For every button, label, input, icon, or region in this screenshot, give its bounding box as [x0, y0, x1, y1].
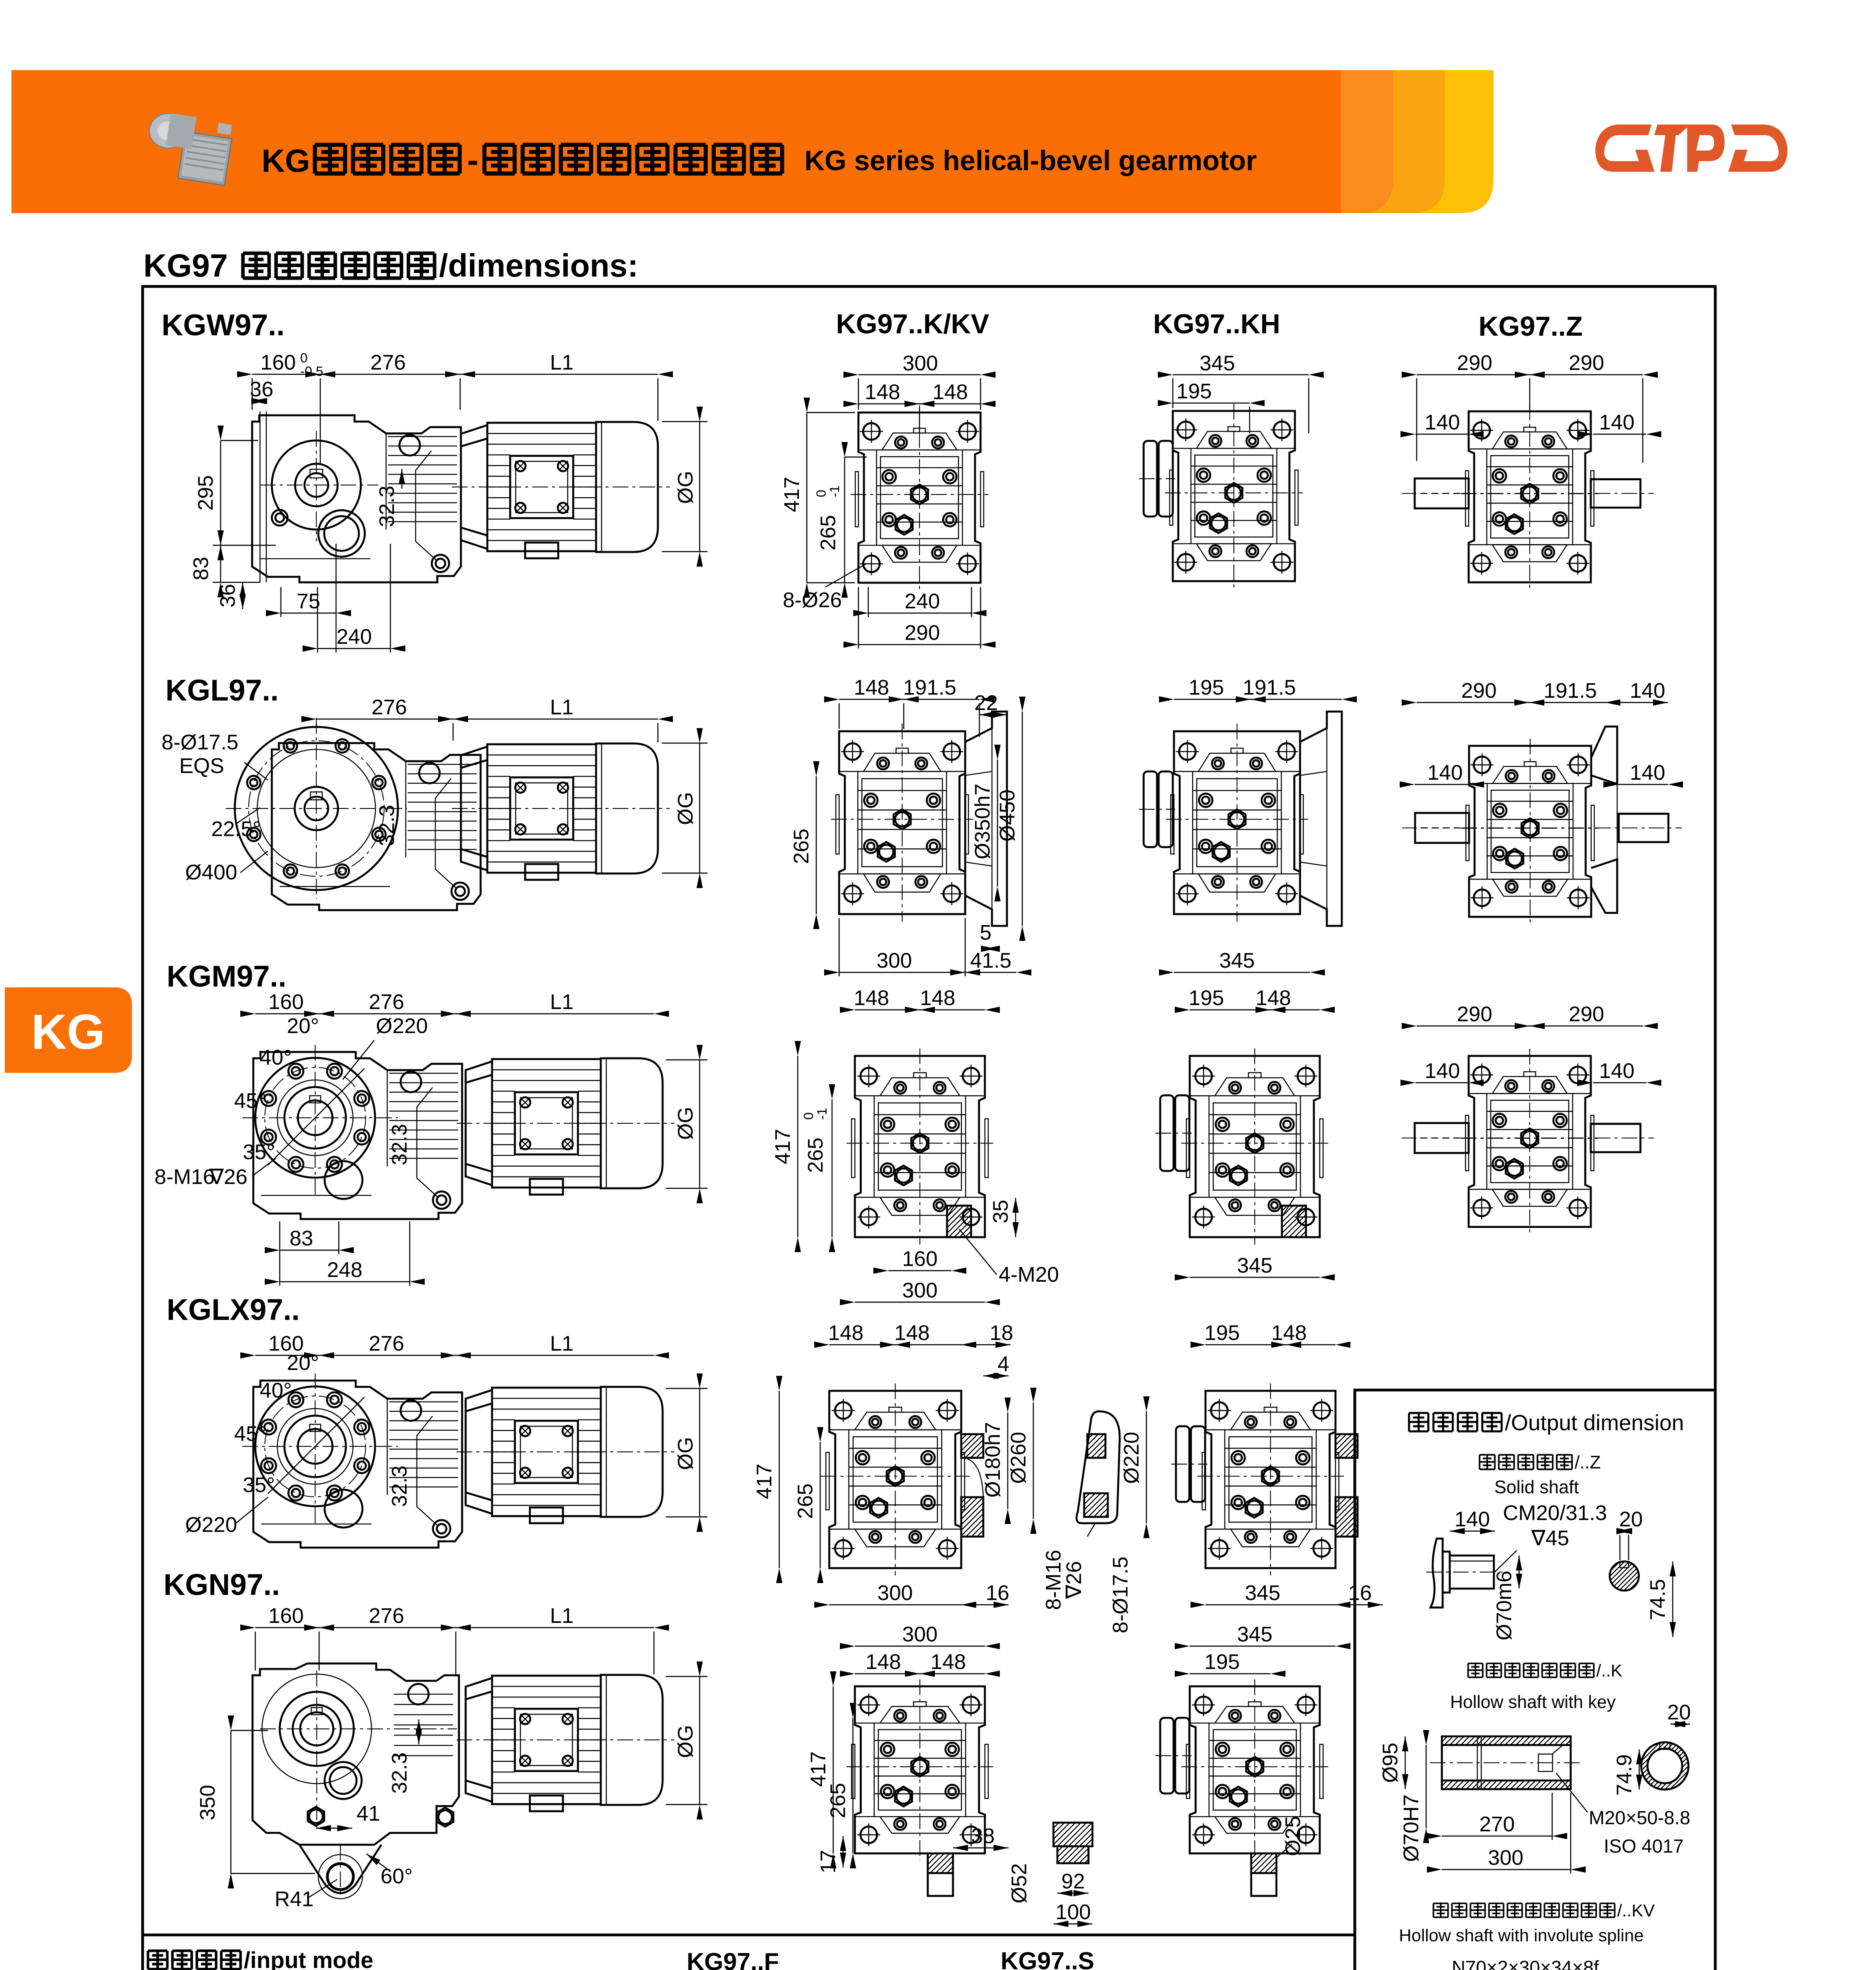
svg-text:148: 148: [866, 1650, 901, 1674]
svg-text:Ø70H7: Ø70H7: [1399, 1794, 1423, 1862]
svg-text:5: 5: [980, 921, 992, 944]
svg-text:-1: -1: [815, 1108, 830, 1120]
svg-text:160: 160: [902, 1247, 938, 1271]
svg-text:160: 160: [260, 351, 296, 374]
svg-text:22: 22: [974, 691, 998, 715]
svg-text:195: 195: [1189, 676, 1224, 699]
svg-text:Ø260: Ø260: [1007, 1432, 1030, 1484]
svg-text:0: 0: [300, 351, 308, 366]
svg-text:345: 345: [1219, 949, 1255, 972]
svg-text:140: 140: [1630, 761, 1665, 784]
svg-text:/input mode: /input mode: [244, 1948, 373, 1970]
svg-text:148: 148: [854, 986, 889, 1010]
svg-text:140: 140: [1599, 1059, 1635, 1083]
svg-text:KGLX97..: KGLX97..: [167, 1293, 300, 1327]
svg-text:22.5°: 22.5°: [211, 817, 261, 841]
svg-text:EQS: EQS: [179, 754, 224, 778]
svg-text:140: 140: [1630, 679, 1665, 703]
svg-text:300: 300: [877, 1581, 913, 1605]
svg-text:KG97..K/KV: KG97..K/KV: [836, 309, 989, 339]
svg-text:40°: 40°: [260, 1046, 292, 1069]
svg-text:/..Z: /..Z: [1575, 1452, 1601, 1472]
svg-text:Ø400: Ø400: [185, 860, 237, 884]
svg-text:148: 148: [828, 1321, 864, 1345]
svg-text:-: -: [467, 141, 479, 179]
svg-text:16: 16: [986, 1581, 1009, 1605]
svg-text:8-Ø17.5: 8-Ø17.5: [1109, 1556, 1132, 1633]
svg-text:140: 140: [1454, 1507, 1490, 1531]
svg-text:8-M16: 8-M16: [1042, 1550, 1065, 1610]
svg-text:92: 92: [1061, 1870, 1085, 1893]
svg-text:248: 248: [327, 1258, 362, 1282]
svg-text:148: 148: [854, 676, 889, 699]
svg-text:∇45: ∇45: [1531, 1526, 1569, 1550]
svg-text:140: 140: [1425, 1059, 1460, 1083]
svg-text:345: 345: [1245, 1581, 1280, 1605]
svg-text:345: 345: [1237, 1254, 1272, 1277]
svg-text:276: 276: [371, 695, 407, 719]
svg-text:Ø180h7: Ø180h7: [981, 1422, 1005, 1498]
svg-text:20°: 20°: [287, 1014, 319, 1038]
svg-text:20°: 20°: [287, 1351, 319, 1375]
svg-text:140: 140: [1425, 411, 1460, 434]
svg-text:35°: 35°: [243, 1140, 275, 1164]
svg-text:ØG: ØG: [674, 1437, 697, 1470]
svg-text:195: 195: [1204, 1650, 1240, 1674]
svg-text:265: 265: [804, 1137, 827, 1173]
svg-text:195: 195: [1204, 1321, 1240, 1345]
svg-text:L1: L1: [550, 695, 574, 719]
svg-text:300: 300: [1488, 1846, 1523, 1870]
svg-text:8-M16: 8-M16: [154, 1165, 215, 1189]
svg-text:KG97..Z: KG97..Z: [1479, 311, 1583, 342]
svg-text:265: 265: [789, 829, 813, 864]
svg-text:32.3: 32.3: [388, 1465, 411, 1507]
svg-text:KG97..KH: KG97..KH: [1153, 309, 1280, 339]
svg-text:0: 0: [814, 490, 829, 497]
svg-text:45°: 45°: [234, 1089, 266, 1113]
svg-text:Ø70m6: Ø70m6: [1492, 1570, 1516, 1640]
svg-text:Ø95: Ø95: [1378, 1743, 1402, 1783]
svg-text:L1: L1: [550, 990, 574, 1014]
svg-text:∇26: ∇26: [209, 1165, 247, 1189]
svg-text:191.5: 191.5: [903, 676, 956, 699]
svg-text:290: 290: [1457, 1002, 1492, 1026]
svg-text:KG series helical-bevel gearmo: KG series helical-bevel gearmotor: [804, 145, 1257, 177]
svg-text:265: 265: [793, 1483, 817, 1519]
svg-text:32.3: 32.3: [388, 1124, 411, 1165]
svg-text:20: 20: [1667, 1701, 1691, 1724]
svg-text:74.5: 74.5: [1646, 1579, 1670, 1620]
svg-text:Ø220: Ø220: [1120, 1432, 1143, 1484]
svg-text:∇26: ∇26: [1062, 1561, 1086, 1599]
svg-text:290: 290: [1457, 351, 1492, 375]
svg-text:ØG: ØG: [674, 471, 697, 504]
svg-text:300: 300: [903, 351, 938, 375]
svg-text:270: 270: [1479, 1812, 1515, 1836]
svg-text:CM20/31.3: CM20/31.3: [1503, 1501, 1607, 1525]
svg-text:KGN97..: KGN97..: [163, 1568, 280, 1602]
svg-text:8-Ø17.5: 8-Ø17.5: [162, 730, 238, 754]
svg-text:290: 290: [1461, 679, 1497, 703]
svg-text:265: 265: [816, 515, 840, 550]
svg-text:40°: 40°: [260, 1379, 292, 1402]
svg-text:KG97..S: KG97..S: [1001, 1948, 1094, 1970]
svg-text:148: 148: [932, 380, 968, 404]
svg-text:KG97: KG97: [143, 248, 228, 284]
svg-text:R41: R41: [275, 1887, 314, 1911]
svg-text:4: 4: [997, 1352, 1009, 1376]
svg-text:18: 18: [990, 1321, 1013, 1345]
svg-text:140: 140: [1427, 761, 1463, 784]
svg-text:KG97..F: KG97..F: [687, 1948, 779, 1970]
svg-text:ØG: ØG: [674, 792, 697, 825]
svg-text:L1: L1: [550, 1604, 574, 1628]
svg-text:Ø220: Ø220: [185, 1513, 237, 1537]
svg-text:17: 17: [816, 1850, 840, 1873]
svg-text:35°: 35°: [243, 1473, 275, 1497]
svg-text:32.3: 32.3: [375, 485, 399, 527]
svg-text:148: 148: [865, 380, 900, 404]
svg-text:Ø220: Ø220: [376, 1014, 428, 1038]
svg-text:8-Ø26: 8-Ø26: [783, 588, 842, 612]
svg-text:Ø52: Ø52: [1007, 1863, 1031, 1903]
svg-text:36: 36: [216, 584, 240, 608]
svg-text:290: 290: [905, 621, 940, 645]
svg-text:345: 345: [1237, 1622, 1272, 1646]
svg-text:20: 20: [1619, 1507, 1643, 1531]
svg-text:41.5: 41.5: [970, 949, 1011, 972]
svg-text:4-M20: 4-M20: [999, 1263, 1059, 1286]
svg-text:417: 417: [780, 477, 804, 512]
svg-text:148: 148: [931, 1650, 966, 1674]
svg-text:0: 0: [801, 1112, 816, 1120]
svg-text:148: 148: [1271, 1321, 1307, 1345]
svg-text:KGL97..: KGL97..: [165, 674, 279, 707]
svg-text:417: 417: [806, 1751, 830, 1787]
svg-text:240: 240: [905, 589, 940, 613]
svg-text:32.3: 32.3: [375, 805, 399, 846]
svg-text:M20×50-8.8: M20×50-8.8: [1589, 1808, 1690, 1829]
svg-text:74.9: 74.9: [1612, 1754, 1636, 1795]
svg-text:140: 140: [1599, 411, 1635, 434]
svg-text:75: 75: [297, 589, 320, 613]
svg-text:148: 148: [894, 1321, 930, 1345]
svg-text:300: 300: [902, 1622, 938, 1646]
svg-text:L1: L1: [550, 351, 574, 374]
svg-text:300: 300: [877, 949, 912, 972]
svg-text:KGM97..: KGM97..: [167, 960, 286, 993]
svg-text:265: 265: [826, 1783, 850, 1818]
svg-text:191.5: 191.5: [1243, 676, 1296, 699]
svg-text:Hollow shaft with involute spl: Hollow shaft with involute spline: [1399, 1926, 1644, 1945]
svg-text:195: 195: [1189, 986, 1224, 1010]
svg-text:148: 148: [920, 986, 955, 1010]
svg-text:-0.5: -0.5: [300, 364, 323, 379]
svg-text:417: 417: [771, 1129, 795, 1164]
svg-text:Ø450: Ø450: [996, 790, 1019, 842]
svg-text:/..KV: /..KV: [1617, 1901, 1655, 1920]
svg-text:290: 290: [1569, 351, 1604, 375]
svg-text:41: 41: [357, 1802, 380, 1825]
svg-text:Solid shaft: Solid shaft: [1494, 1477, 1579, 1497]
svg-text:276: 276: [370, 351, 406, 374]
svg-text:ØG: ØG: [674, 1725, 697, 1758]
svg-text:276: 276: [369, 1332, 404, 1355]
svg-text:45°: 45°: [234, 1422, 266, 1446]
svg-text:290: 290: [1569, 1002, 1604, 1026]
svg-text:32.3: 32.3: [388, 1752, 411, 1793]
svg-text:/dimensions:: /dimensions:: [439, 248, 638, 284]
svg-text:/..K: /..K: [1596, 1661, 1622, 1680]
svg-text:KG: KG: [262, 143, 310, 179]
svg-text:160: 160: [268, 990, 304, 1014]
svg-text:345: 345: [1200, 351, 1235, 375]
svg-text:350: 350: [196, 1785, 219, 1820]
svg-text:N70×2×30×34×8f: N70×2×30×34×8f: [1452, 1957, 1599, 1970]
svg-text:195: 195: [1176, 379, 1212, 403]
svg-text:191.5: 191.5: [1544, 679, 1597, 703]
svg-text:240: 240: [336, 625, 372, 649]
svg-text:36: 36: [250, 377, 273, 401]
svg-text:35: 35: [989, 1200, 1012, 1223]
svg-text:L1: L1: [550, 1332, 574, 1355]
svg-text:417: 417: [752, 1464, 776, 1499]
svg-text:ØG: ØG: [674, 1107, 697, 1140]
svg-text:KG: KG: [31, 1005, 105, 1059]
svg-text:160: 160: [268, 1604, 304, 1628]
svg-text:16: 16: [1348, 1581, 1372, 1605]
svg-text:ISO 4017: ISO 4017: [1604, 1836, 1684, 1857]
svg-text:Ø350h7: Ø350h7: [971, 784, 994, 859]
svg-text:276: 276: [369, 1604, 404, 1628]
svg-text:300: 300: [902, 1279, 938, 1302]
svg-text:100: 100: [1055, 1900, 1091, 1924]
svg-text:148: 148: [1256, 986, 1291, 1010]
svg-text:-1: -1: [827, 485, 842, 497]
svg-text:83: 83: [290, 1227, 313, 1250]
svg-text:295: 295: [194, 475, 217, 511]
svg-text:83: 83: [189, 557, 213, 580]
svg-text:276: 276: [369, 990, 404, 1014]
svg-text:Hollow shaft with key: Hollow shaft with key: [1450, 1692, 1616, 1712]
svg-text:/Output dimension: /Output dimension: [1505, 1410, 1684, 1435]
svg-text:38: 38: [971, 1824, 995, 1848]
svg-text:KGW97..: KGW97..: [162, 309, 285, 342]
